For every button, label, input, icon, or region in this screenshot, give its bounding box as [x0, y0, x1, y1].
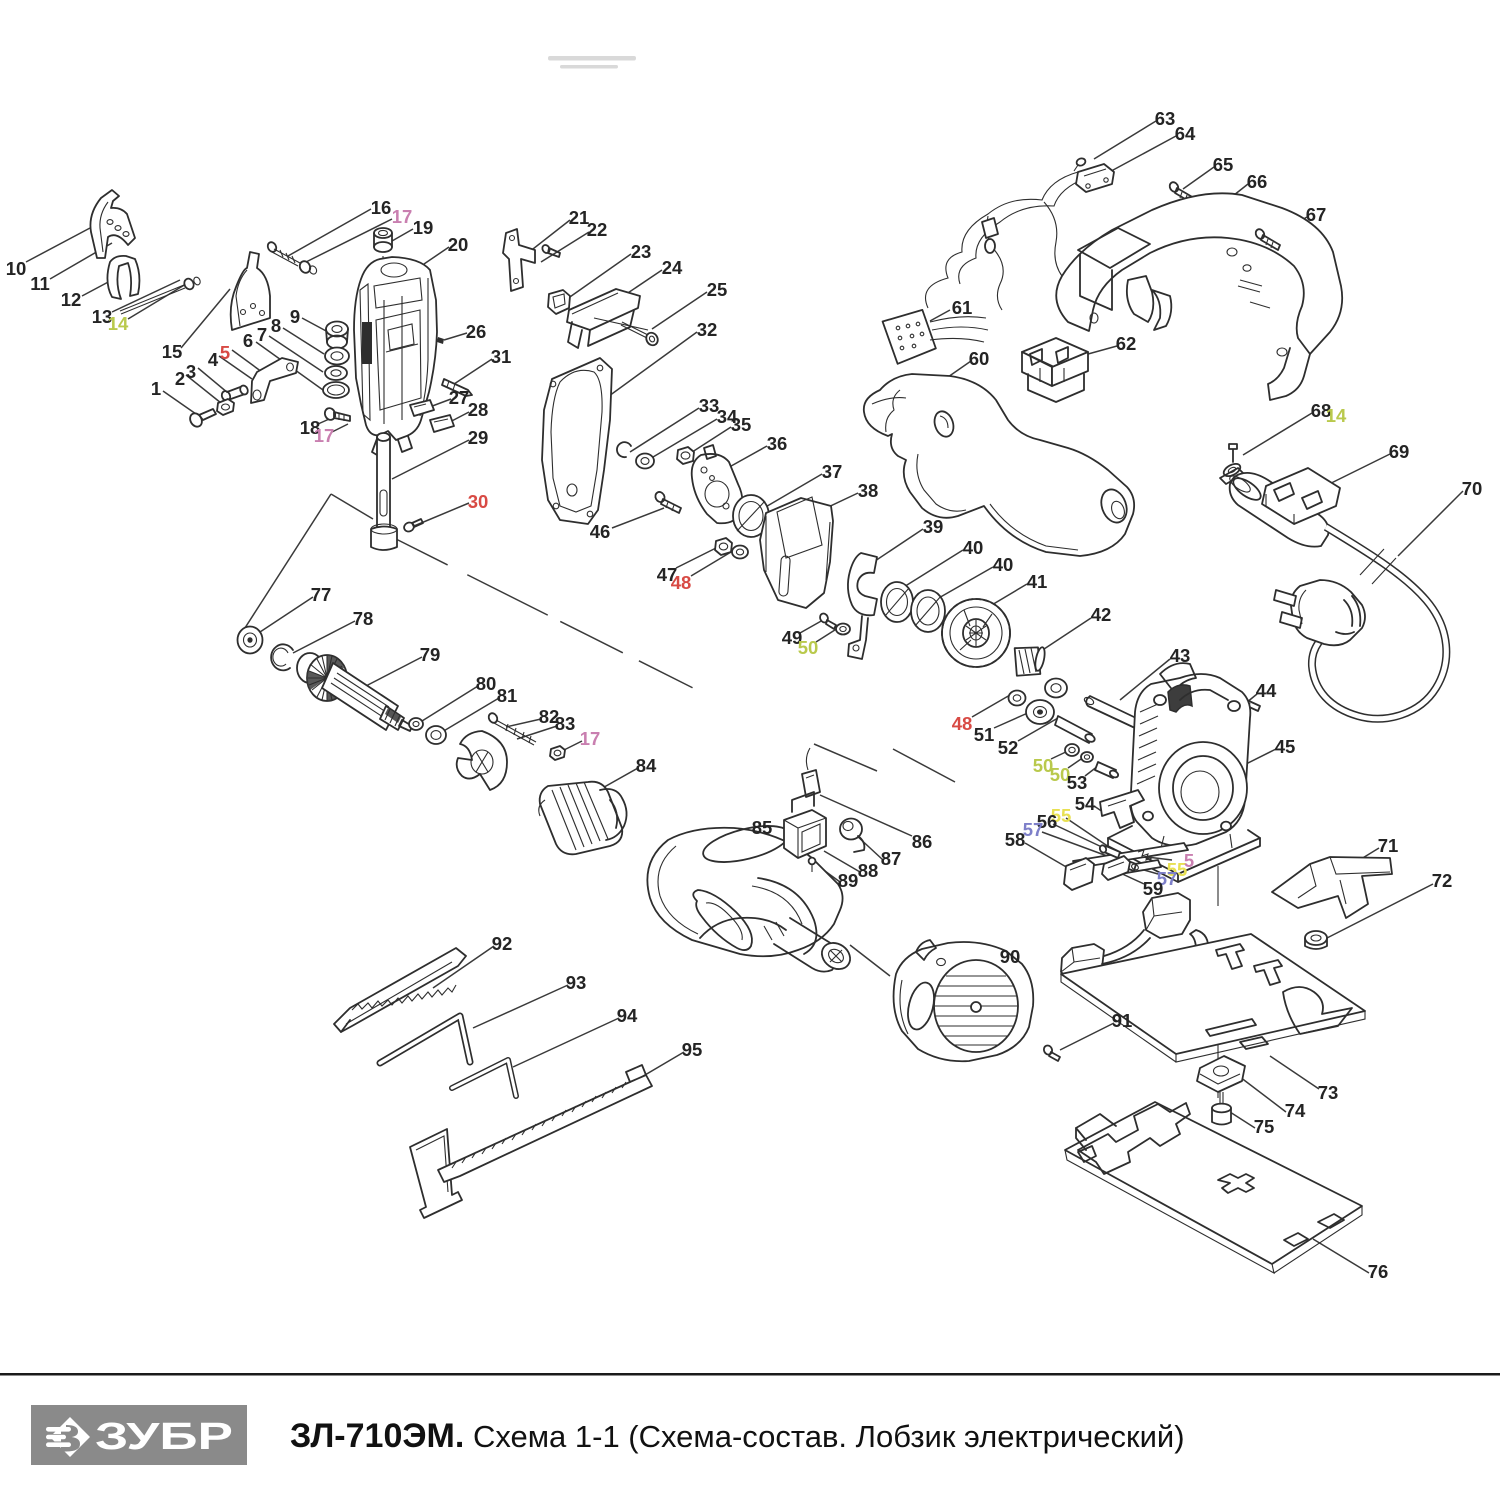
- svg-text:60: 60: [969, 348, 990, 369]
- svg-text:11: 11: [30, 273, 50, 294]
- svg-text:84: 84: [636, 755, 657, 776]
- svg-text:95: 95: [682, 1039, 703, 1060]
- svg-text:8: 8: [271, 315, 281, 336]
- svg-text:73: 73: [1318, 1082, 1339, 1103]
- svg-text:19: 19: [413, 217, 434, 238]
- svg-text:80: 80: [476, 673, 497, 694]
- svg-text:76: 76: [1368, 1261, 1389, 1282]
- svg-text:16: 16: [371, 197, 392, 218]
- svg-text:31: 31: [491, 346, 512, 367]
- svg-text:44: 44: [1256, 680, 1277, 701]
- svg-text:89: 89: [838, 870, 859, 891]
- svg-text:20: 20: [448, 234, 469, 255]
- svg-text:39: 39: [923, 516, 944, 537]
- svg-text:93: 93: [566, 972, 587, 993]
- svg-text:15: 15: [162, 341, 183, 362]
- svg-text:24: 24: [662, 257, 683, 278]
- svg-text:74: 74: [1285, 1100, 1306, 1121]
- svg-text:50: 50: [798, 637, 819, 658]
- svg-text:88: 88: [858, 860, 879, 881]
- svg-text:29: 29: [468, 427, 489, 448]
- svg-text:87: 87: [881, 848, 902, 869]
- svg-text:62: 62: [1116, 333, 1137, 354]
- svg-text:77: 77: [311, 584, 332, 605]
- svg-text:5: 5: [220, 342, 230, 363]
- svg-text:75: 75: [1254, 1116, 1275, 1137]
- svg-text:2: 2: [175, 368, 185, 389]
- svg-text:42: 42: [1091, 604, 1112, 625]
- svg-text:67: 67: [1306, 204, 1327, 225]
- svg-text:48: 48: [671, 572, 692, 593]
- svg-text:86: 86: [912, 831, 933, 852]
- svg-text:92: 92: [492, 933, 513, 954]
- svg-text:10: 10: [6, 258, 27, 279]
- svg-text:48: 48: [952, 713, 973, 734]
- svg-text:17: 17: [392, 206, 413, 227]
- svg-text:22: 22: [587, 219, 608, 240]
- svg-text:58: 58: [1005, 829, 1026, 850]
- svg-text:71: 71: [1378, 835, 1399, 856]
- svg-text:32: 32: [697, 319, 718, 340]
- svg-text:90: 90: [1000, 946, 1021, 967]
- svg-text:57: 57: [1023, 819, 1044, 840]
- svg-text:30: 30: [468, 491, 489, 512]
- svg-text:72: 72: [1432, 870, 1453, 891]
- svg-text:14: 14: [1326, 405, 1347, 426]
- svg-text:51: 51: [974, 724, 995, 745]
- svg-text:66: 66: [1247, 171, 1268, 192]
- svg-text:36: 36: [767, 433, 788, 454]
- svg-text:63: 63: [1155, 108, 1176, 129]
- svg-text:25: 25: [707, 279, 728, 300]
- svg-text:41: 41: [1027, 571, 1048, 592]
- svg-text:91: 91: [1112, 1010, 1133, 1031]
- svg-text:54: 54: [1075, 793, 1096, 814]
- svg-text:38: 38: [858, 480, 879, 501]
- svg-text:70: 70: [1462, 478, 1483, 499]
- svg-text:ЗЛ-710ЭМ. Схема 1-1 (Схема-сос: ЗЛ-710ЭМ. Схема 1-1 (Схема-состав. Лобзи…: [290, 1417, 1185, 1455]
- svg-text:5: 5: [1184, 850, 1194, 871]
- svg-text:81: 81: [497, 685, 518, 706]
- svg-text:9: 9: [290, 306, 300, 327]
- svg-text:37: 37: [822, 461, 843, 482]
- svg-text:26: 26: [466, 321, 487, 342]
- svg-text:69: 69: [1389, 441, 1410, 462]
- svg-text:4: 4: [208, 349, 219, 370]
- svg-text:35: 35: [731, 414, 752, 435]
- svg-text:17: 17: [314, 425, 335, 446]
- svg-text:85: 85: [752, 817, 773, 838]
- svg-text:40: 40: [993, 554, 1014, 575]
- svg-text:59: 59: [1143, 878, 1164, 899]
- svg-text:6: 6: [243, 330, 253, 351]
- svg-text:94: 94: [617, 1005, 638, 1026]
- svg-text:61: 61: [952, 297, 973, 318]
- svg-text:23: 23: [631, 241, 652, 262]
- svg-text:28: 28: [468, 399, 489, 420]
- svg-text:78: 78: [353, 608, 374, 629]
- svg-text:3: 3: [186, 361, 196, 382]
- svg-text:17: 17: [580, 728, 601, 749]
- svg-text:53: 53: [1067, 772, 1088, 793]
- svg-text:79: 79: [420, 644, 441, 665]
- svg-text:43: 43: [1170, 645, 1191, 666]
- svg-text:65: 65: [1213, 154, 1234, 175]
- svg-text:27: 27: [449, 387, 470, 408]
- svg-text:64: 64: [1175, 123, 1196, 144]
- svg-text:ЗУБР: ЗУБР: [95, 1416, 233, 1458]
- svg-text:83: 83: [555, 713, 576, 734]
- svg-text:46: 46: [590, 521, 611, 542]
- svg-text:40: 40: [963, 537, 984, 558]
- svg-text:1: 1: [151, 378, 161, 399]
- svg-text:45: 45: [1275, 736, 1296, 757]
- svg-text:12: 12: [61, 289, 82, 310]
- svg-text:52: 52: [998, 737, 1019, 758]
- svg-text:7: 7: [257, 324, 267, 345]
- svg-text:14: 14: [108, 313, 129, 334]
